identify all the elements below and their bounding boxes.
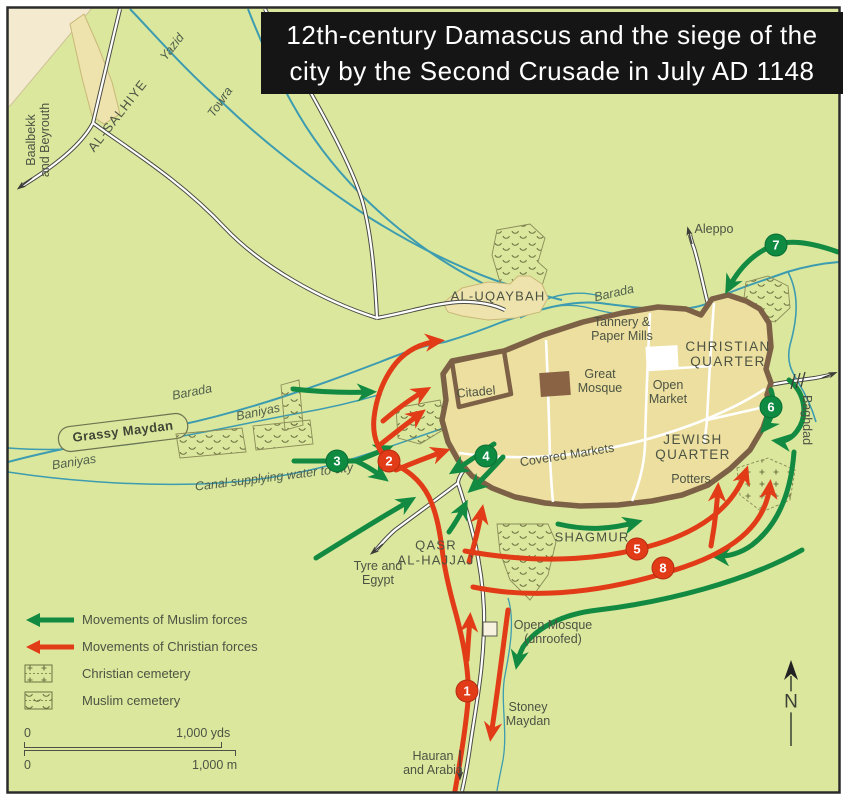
map-title-line2: city by the Second Crusade in July AD 11…	[290, 53, 815, 89]
scale-m-label: 1,000 m	[192, 758, 237, 772]
siege-marker-7: 7	[765, 234, 788, 257]
open-mosque-building	[483, 622, 497, 636]
legend-row-christian-forces: Movements of Christian forces	[24, 633, 294, 660]
scale-yds-label: 1,000 yds	[176, 726, 230, 740]
map-title-line1: 12th-century Damascus and the siege of t…	[286, 17, 817, 53]
muslim-cemetery-icon	[24, 691, 82, 711]
christian-arrow-icon	[24, 639, 82, 655]
scale-m-zero: 0	[24, 758, 31, 772]
legend: Movements of Muslim forces Movements of …	[24, 606, 294, 714]
scale-bar-yds	[24, 742, 222, 748]
legend-row-christian-cemetery: Christian cemetery	[24, 660, 294, 687]
scale-bar-m	[24, 750, 236, 756]
muslim-arrow-icon	[24, 612, 82, 628]
legend-label: Movements of Muslim forces	[82, 612, 247, 627]
map-page: AL-SALHIYEYazidTowraBaalbekk and Beyrout…	[0, 0, 847, 800]
christian-cemetery-icon	[24, 664, 82, 684]
open-market-square	[645, 345, 678, 369]
scale-yds-zero: 0	[24, 726, 31, 740]
siege-marker-3: 3	[326, 450, 349, 473]
legend-row-muslim-forces: Movements of Muslim forces	[24, 606, 294, 633]
siege-marker-4: 4	[475, 445, 498, 468]
christian-arrow-column-head	[467, 618, 470, 660]
siege-marker-2: 2	[378, 450, 401, 473]
map-title: 12th-century Damascus and the siege of t…	[261, 12, 843, 94]
siege-marker-6: 6	[760, 396, 783, 419]
legend-label: Movements of Christian forces	[82, 639, 258, 654]
scale-bar: 0 1,000 yds 0 1,000 m	[24, 726, 244, 774]
siege-marker-1: 1	[456, 680, 479, 703]
great-mosque-building	[539, 371, 571, 397]
siege-marker-5: 5	[626, 538, 649, 561]
legend-label: Muslim cemetery	[82, 693, 180, 708]
legend-row-muslim-cemetery: Muslim cemetery	[24, 687, 294, 714]
legend-label: Christian cemetery	[82, 666, 190, 681]
siege-marker-8: 8	[652, 557, 675, 580]
